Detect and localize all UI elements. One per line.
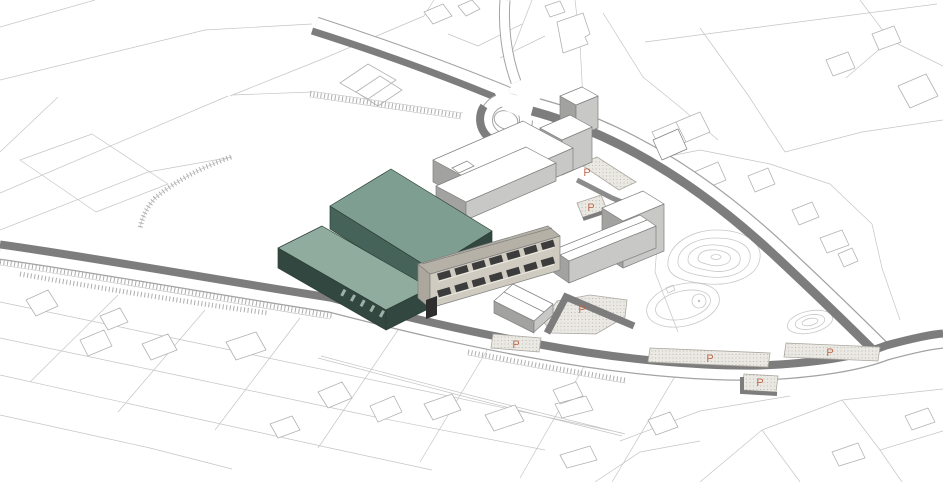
parking-marker: P: [756, 377, 763, 389]
site-plan-rendering: PPPPPPP: [0, 0, 943, 482]
site-plan-canvas: PPPPPPP: [0, 0, 943, 482]
parking-marker: P: [706, 353, 713, 365]
parking-marker: P: [826, 347, 833, 359]
parking-marker: P: [578, 304, 585, 316]
play-circle-dot: [698, 300, 700, 302]
parking-marker: P: [587, 202, 594, 214]
entrance-door: [426, 296, 437, 319]
parking-marker: P: [512, 339, 519, 351]
parking-marker: P: [583, 167, 590, 179]
